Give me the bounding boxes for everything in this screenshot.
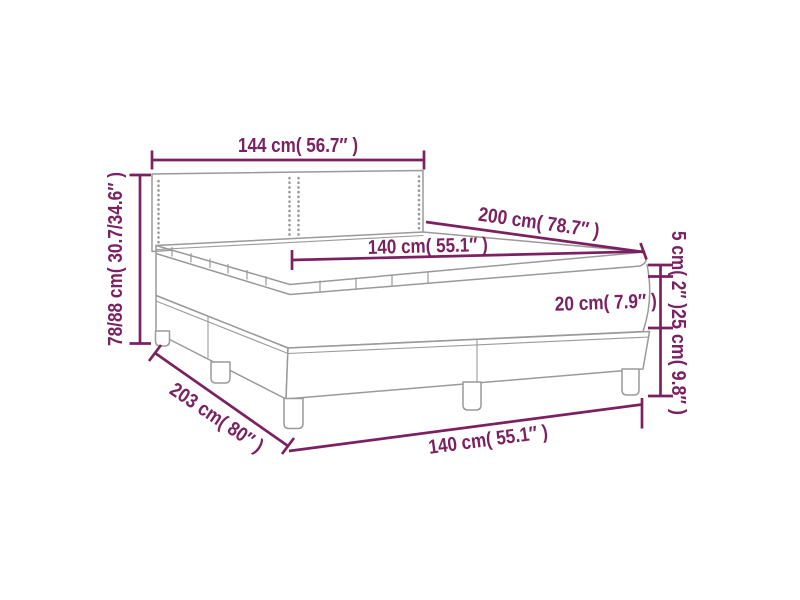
- label-mattress-thickness: 20 cm( 7.9″ ): [554, 290, 657, 316]
- leg-far-right: [622, 369, 639, 395]
- label-mattress-width: 140 cm( 55.1″ ): [368, 234, 489, 259]
- diagram-canvas: 144 cm( 56.7″ ) 78/88 cm( 30.7/34.6″ ) 2…: [0, 0, 800, 600]
- label-topper-thickness: 5 cm( 2″ ): [667, 231, 689, 309]
- leg-mid-right: [463, 382, 481, 410]
- dim-headboard-height: [130, 175, 152, 344]
- leg-mid-left: [211, 362, 230, 383]
- leg-far-left: [156, 331, 170, 346]
- label-base-width: 140 cm( 55.1″ ): [427, 421, 549, 459]
- label-base-height: 25 cm( 9.8″ ): [667, 309, 689, 415]
- bed-dimension-diagram: 144 cm( 56.7″ ) 78/88 cm( 30.7/34.6″ ) 2…: [0, 0, 800, 600]
- label-headboard-height: 78/88 cm( 30.7/34.6″ ): [105, 172, 127, 346]
- label-headboard-width: 144 cm( 56.7″ ): [238, 135, 358, 157]
- leg-front-corner: [284, 399, 303, 429]
- label-total-length: 203 cm( 80″ ): [165, 379, 267, 458]
